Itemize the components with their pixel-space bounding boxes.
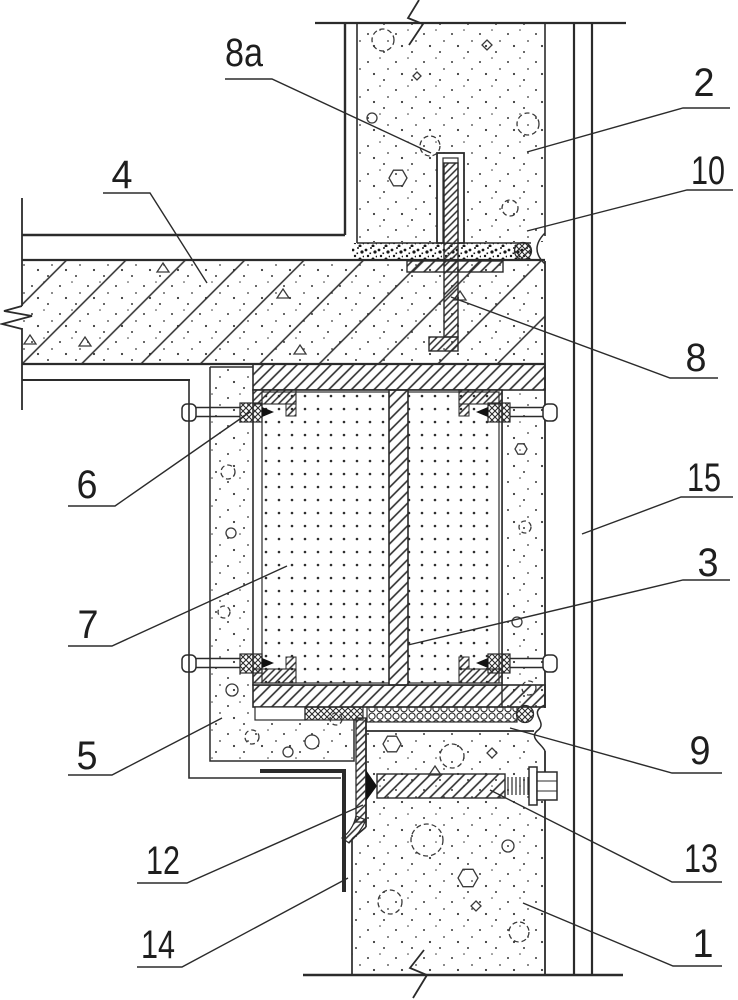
- callout-label-13: 13: [684, 837, 718, 881]
- callout-label-14: 14: [141, 923, 175, 967]
- upper-wall-panel: [315, 23, 626, 243]
- backer-rod-bottom: [517, 706, 534, 723]
- bolt-washer: [529, 767, 537, 805]
- backer-rod-top: [515, 243, 532, 260]
- callout-label-8: 8: [686, 336, 707, 380]
- patent-figure: 8a 2 10 4 8 6 15 3 7 5 9 12 13 14 1: [0, 0, 738, 1000]
- callout-label-3: 3: [698, 541, 719, 585]
- callout-label-6: 6: [77, 463, 98, 507]
- bolt-hex-head: [537, 772, 557, 800]
- callout-12: 12: [137, 805, 363, 883]
- callout-label-7: 7: [78, 603, 99, 647]
- callout-label-5: 5: [77, 734, 98, 778]
- callout-label-1: 1: [693, 922, 714, 966]
- callout-label-4: 4: [112, 153, 133, 197]
- infill-right-cell: [408, 392, 499, 683]
- anchor-foot: [429, 337, 458, 351]
- embedded-plate: [407, 261, 503, 272]
- infill-left-cell: [262, 392, 389, 683]
- anchor-rod: [444, 163, 458, 337]
- bottom-plate: [253, 685, 545, 707]
- top-plate: [253, 364, 545, 390]
- callout-15: 15: [582, 456, 733, 534]
- callout-1: 1: [523, 903, 722, 966]
- callout-label-2: 2: [694, 61, 715, 105]
- joint-connector-box: [210, 364, 545, 761]
- callout-label-10: 10: [691, 149, 725, 193]
- callout-14: 14: [137, 878, 348, 967]
- shim-plate: [255, 707, 305, 720]
- foam-gasket-strip: [367, 707, 517, 722]
- callout-label-8a: 8a: [225, 31, 264, 75]
- channel-web: [389, 390, 408, 685]
- callout-2: 2: [527, 61, 730, 152]
- callout-5: 5: [68, 718, 222, 778]
- callout-10: 10: [527, 149, 733, 231]
- callout-label-15: 15: [687, 456, 721, 500]
- callout-label-12: 12: [146, 839, 180, 883]
- horizontal-bolt-shaft: [377, 774, 505, 798]
- callout-label-9: 9: [690, 729, 711, 773]
- exterior-cladding-layer: [574, 23, 592, 975]
- joint-detail-drawing: 8a 2 10 4 8 6 15 3 7 5 9 12 13 14 1: [0, 0, 738, 1000]
